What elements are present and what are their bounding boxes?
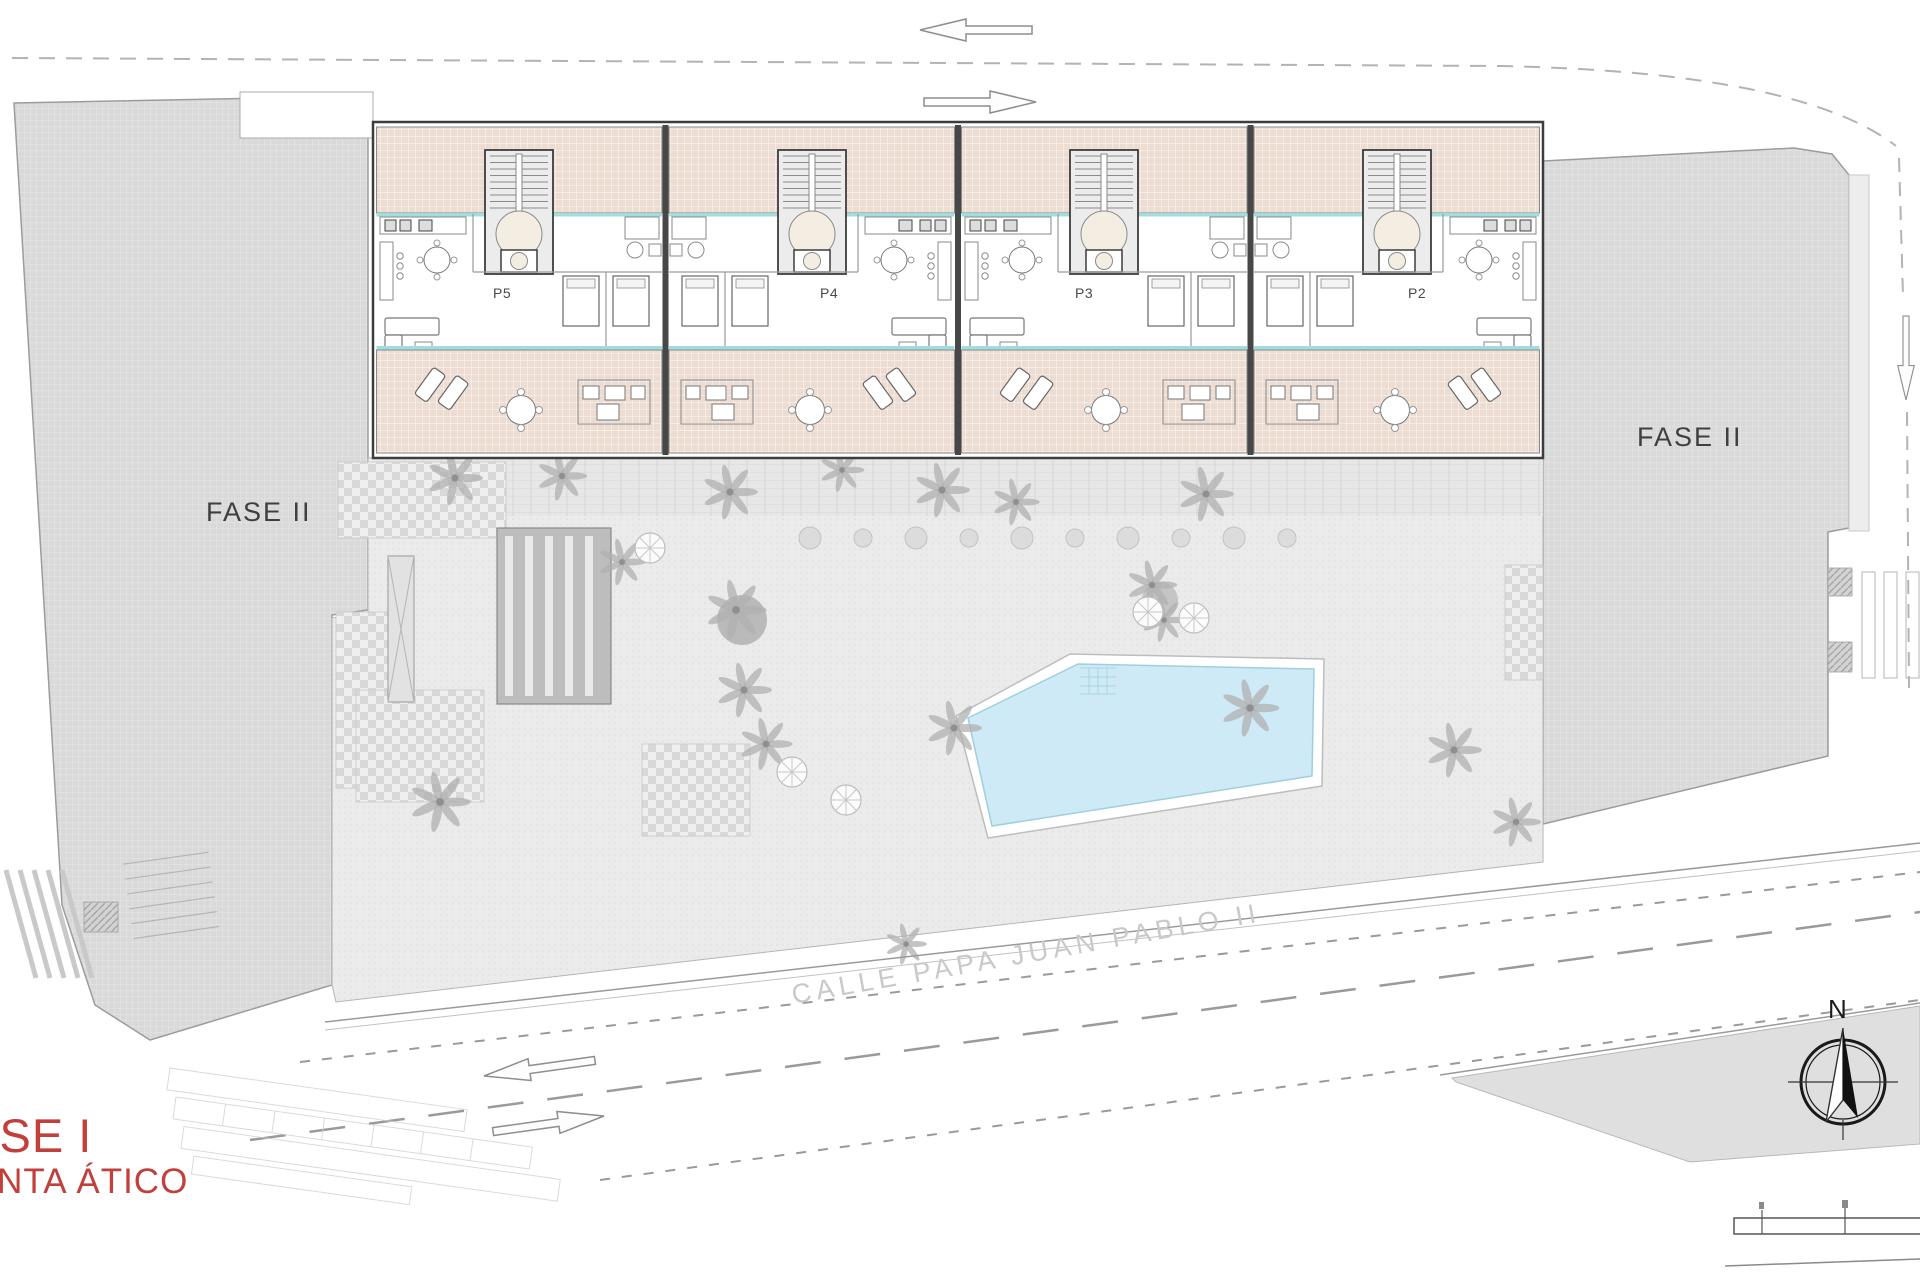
party-wall	[663, 125, 669, 455]
shrub-icon	[1278, 529, 1296, 547]
direction-arrow-icon	[920, 19, 1032, 41]
parasol-icon	[635, 533, 665, 563]
shrub-icon	[1172, 529, 1190, 547]
phase2-block-right	[1543, 148, 1869, 824]
page-title-plan: PLANTA ÁTICO	[0, 1162, 188, 1202]
sidewalk-strip	[1849, 175, 1869, 531]
site-plan-page: FASE II FASE II CALLE PAPA JUAN PABLO II…	[0, 0, 1920, 1280]
page-title-phase: FASE I	[0, 1108, 92, 1163]
tiled-path	[356, 690, 484, 802]
shrub-icon	[1066, 529, 1084, 547]
unit-label-p2: P2	[1408, 285, 1426, 301]
shrub-icon	[854, 529, 872, 547]
shrub-icon	[1223, 527, 1245, 549]
planter	[1505, 565, 1543, 680]
unit-label-p5: P5	[493, 285, 511, 301]
tiled-path	[338, 462, 506, 538]
party-wall	[1248, 125, 1254, 455]
boundary-dashed-line	[1899, 158, 1903, 296]
site-plan-drawing	[0, 0, 1920, 1280]
parasol-icon	[831, 785, 861, 815]
phase2-label-left: FASE II	[206, 497, 312, 528]
parasol-icon	[1133, 597, 1163, 627]
parasol-icon	[777, 757, 807, 787]
roof-notch	[240, 92, 373, 138]
direction-arrow-icon	[492, 1105, 606, 1142]
shrub-icon	[799, 527, 821, 549]
pergola	[497, 528, 611, 704]
tiled-path	[642, 744, 750, 836]
direction-arrow-icon	[924, 91, 1036, 113]
scale-bar	[1725, 1200, 1920, 1266]
building-floor-plan	[373, 122, 1543, 458]
hatch-square	[84, 902, 118, 932]
scale-tick-mark	[1842, 1200, 1848, 1208]
phase2-label-right: FASE II	[1637, 422, 1743, 453]
parasol-icon	[1179, 603, 1209, 633]
direction-arrow-icon	[1898, 316, 1915, 400]
scale-tick-mark	[1759, 1202, 1764, 1209]
shrub-icon	[1011, 527, 1033, 549]
shrub-icon	[960, 529, 978, 547]
north-label: N	[1828, 994, 1847, 1025]
right-edge-markings	[1828, 568, 1919, 678]
unit-label-p4: P4	[820, 285, 838, 301]
unit-label-p3: P3	[1075, 285, 1093, 301]
party-wall	[955, 125, 961, 455]
section-sketch	[156, 1068, 568, 1225]
shrub-icon	[1117, 527, 1139, 549]
direction-arrow-icon	[482, 1050, 596, 1087]
garden-area	[332, 447, 1543, 1002]
shrub-icon	[905, 527, 927, 549]
